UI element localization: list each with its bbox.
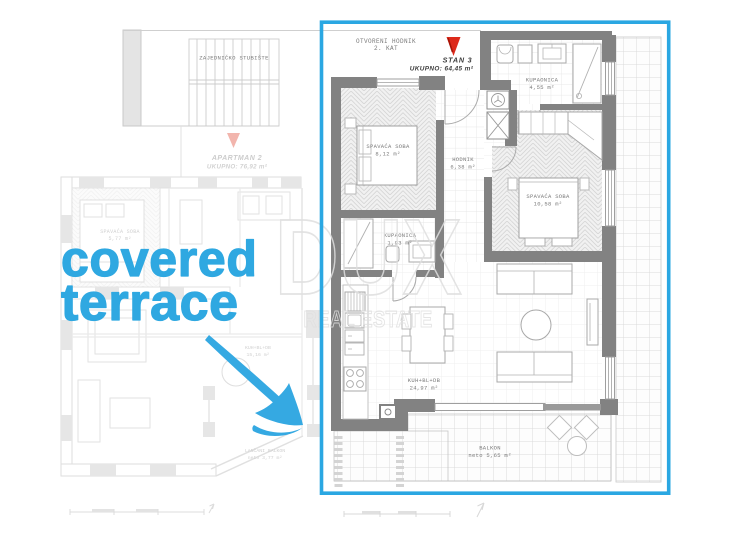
svg-text:neto 5,65 m²: neto 5,65 m² <box>468 452 511 459</box>
svg-text:APARTMAN 2: APARTMAN 2 <box>211 155 262 162</box>
svg-text:terrace: terrace <box>61 274 239 332</box>
svg-text:10,58 m²: 10,58 m² <box>534 201 563 208</box>
svg-text:8,12 m²: 8,12 m² <box>375 151 400 158</box>
svg-text:neto 3,77 m²: neto 3,77 m² <box>248 455 283 461</box>
svg-text:2. KAT: 2. KAT <box>374 45 398 52</box>
svg-text:UKUPNO: 64,45 m²: UKUPNO: 64,45 m² <box>410 66 474 73</box>
svg-text:ZAJEDNIČKO STUBIŠTE: ZAJEDNIČKO STUBIŠTE <box>199 55 269 62</box>
svg-text:HODNIK: HODNIK <box>452 156 474 163</box>
svg-text:STAN 3: STAN 3 <box>443 56 473 65</box>
svg-text:SPAVAĆA SOBA: SPAVAĆA SOBA <box>366 143 410 150</box>
svg-text:KUH+BL+DB: KUH+BL+DB <box>245 345 271 351</box>
svg-text:15,16 m²: 15,16 m² <box>246 352 269 358</box>
svg-text:DUX: DUX <box>275 197 462 317</box>
svg-text:4,55 m²: 4,55 m² <box>529 84 554 91</box>
svg-text:SPAVAĆA SOBA: SPAVAĆA SOBA <box>526 193 570 200</box>
svg-text:6,38 m²: 6,38 m² <box>450 164 475 171</box>
svg-text:KUH+BL+DB: KUH+BL+DB <box>408 377 441 384</box>
svg-text:UKUPNO: 76,92 m²: UKUPNO: 76,92 m² <box>207 164 268 171</box>
svg-text:24,97 m²: 24,97 m² <box>410 385 439 392</box>
svg-text:BALKON: BALKON <box>479 445 501 452</box>
svg-text:LANČANI BALKON: LANČANI BALKON <box>245 447 285 454</box>
svg-text:KUPAONICA: KUPAONICA <box>526 77 559 84</box>
svg-text:OTVORENI HODNIK: OTVORENI HODNIK <box>356 38 416 45</box>
